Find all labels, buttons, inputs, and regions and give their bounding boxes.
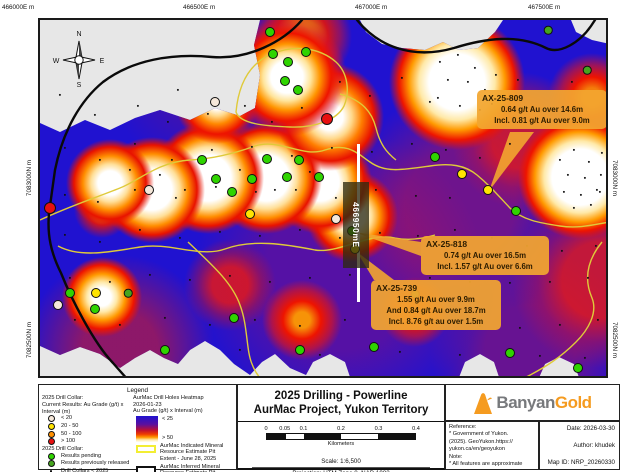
- grade-50-100-symbol: [48, 431, 55, 438]
- pending-drill-collar: [295, 345, 305, 355]
- inferred-pit-label: AurMac Inferred Mineral Resource Estimat…: [160, 464, 232, 472]
- callout-ax-25-809: AX-25-809 0.64 g/t Au over 14.6m Incl. 0…: [477, 90, 607, 129]
- assay-line: 0.64 g/t Au over 14.6m: [482, 104, 602, 115]
- svg-text:S: S: [77, 82, 82, 88]
- indicated-pit-label: AurMac Indicated Mineral Resource Estima…: [160, 443, 232, 463]
- note-line: * All features are approximate: [449, 461, 535, 468]
- released-drill-collar: [583, 66, 592, 75]
- map-title: 2025 Drilling - Powerline AurMac Project…: [238, 389, 444, 417]
- brand-gold: Gold: [555, 393, 592, 412]
- released-drill-collar: [544, 26, 553, 35]
- pending-drill-collar: [65, 288, 75, 298]
- heatmap-legend-date: 2026-01-23: [133, 402, 233, 409]
- assay-line: 0.74 g/t Au over 16.5m: [426, 250, 544, 261]
- svg-text:E: E: [100, 58, 105, 65]
- reference-line: * Government of Yukon.: [449, 431, 535, 438]
- red-drill-collar: [44, 202, 56, 214]
- pending-drill-collar: [294, 155, 304, 165]
- pending-drill-collar: [229, 313, 239, 323]
- note-header: Note:: [449, 454, 535, 461]
- results-pending-symbol: [48, 453, 55, 460]
- scale-tick: 0.05: [279, 426, 290, 432]
- grade-label: 50 - 100: [61, 431, 82, 438]
- yellow-drill-collar: [245, 209, 255, 219]
- heatmap-min-label: < 25: [162, 416, 173, 423]
- scale-tick: 0.3: [375, 426, 383, 432]
- yellow-drill-collar: [457, 169, 467, 179]
- pending-drill-collar: [197, 155, 207, 165]
- northing-label: 7083000N m: [611, 160, 618, 196]
- pending-drill-collar: [369, 342, 379, 352]
- hole-id: AX-25-809: [482, 93, 602, 104]
- callout-ax-25-739: AX-25-739 1.55 g/t Au over 9.9m And 0.84…: [371, 280, 501, 330]
- scale-tick: 0.1: [300, 426, 308, 432]
- grade-label: > 100: [61, 438, 75, 445]
- status-label: Results pending: [61, 453, 101, 460]
- callout-ax-25-818: AX-25-818 0.74 g/t Au over 16.5m Incl. 1…: [421, 236, 549, 275]
- svg-text:N: N: [76, 31, 81, 38]
- project-boundary-line: [49, 20, 596, 378]
- section-line-label: 466950mE: [343, 182, 369, 268]
- map-sheet: 466000E m 466500E m 467000E m 467500E m …: [0, 0, 624, 472]
- grade-gt100-symbol: [48, 438, 55, 445]
- pending-drill-collar: [262, 154, 272, 164]
- inferred-pit-swatch: [136, 466, 156, 472]
- grade-label: < 20: [61, 415, 72, 422]
- pending-drill-collar: [314, 172, 324, 182]
- status-label: Results previously released: [61, 460, 129, 467]
- northing-label: 7082500N m: [26, 322, 33, 358]
- svg-text:W: W: [53, 58, 60, 65]
- heatmap-gradient-swatch: [136, 416, 158, 442]
- hole-id: AX-25-739: [376, 283, 496, 294]
- reference-header: Reference:: [449, 424, 535, 431]
- legend-heatmap-column: AurMac Drill Holes Heatmap 2026-01-23 Au…: [133, 395, 233, 472]
- easting-label: 467500E m: [528, 4, 560, 11]
- pending-drill-collar: [430, 152, 440, 162]
- compass-rose: N S W E: [52, 26, 106, 88]
- heatmap-max-label: > 50: [162, 435, 173, 442]
- pending-drill-collar: [573, 363, 583, 373]
- scale-tick: 0.2: [337, 426, 345, 432]
- grade-lt20-symbol: [48, 415, 55, 422]
- assay-line: Incl. 0.81 g/t Au over 9.0m: [482, 115, 602, 126]
- yellow-drill-collar: [91, 288, 101, 298]
- legend-subheader: Current Results: Au Grade (g/t) x Interv…: [42, 402, 133, 415]
- scale-bar: 0 0.05 0.1 0.2 0.3 0.4 Kilometers: [266, 426, 416, 447]
- assay-line: Incl. 1.57 g/t Au over 6.6m: [426, 261, 544, 272]
- northing-label: 7083000N m: [26, 160, 33, 196]
- low-drill-collar: [144, 185, 154, 195]
- legend-header: 2025 Drill Collar:: [42, 395, 133, 402]
- pending-drill-collar: [301, 47, 311, 57]
- released-drill-collar: [124, 289, 133, 298]
- indicated-pit-swatch: [136, 445, 156, 453]
- red-drill-collar: [321, 113, 333, 125]
- yellow-drill-collar: [483, 185, 493, 195]
- brand-banyan: Banyan: [496, 393, 554, 412]
- pending-drill-collar: [247, 174, 257, 184]
- legend-panel: Legend 2025 Drill Collar: Current Result…: [38, 384, 237, 470]
- assay-line: Incl. 8.76 g/t au over 1.5m: [376, 316, 496, 327]
- heatmap-canvas: 466950mE AX-25-809 0.64 g/t Au over 14.6…: [38, 18, 608, 378]
- map-meta-cell: Date: 2026-03-30 Author: khudek Map ID: …: [539, 421, 620, 470]
- scale-section: 0 0.05 0.1 0.2 0.3 0.4 Kilometers Scale:…: [238, 421, 444, 472]
- banyan-mountain-icon: [473, 391, 493, 415]
- reference-line: yukon.ca/en/geoyukon: [449, 446, 535, 453]
- legend-header: 2025 Drill Collar:: [42, 446, 133, 453]
- northing-label: 7082500N m: [611, 322, 618, 358]
- easting-label: 466500E m: [183, 4, 215, 11]
- pending-drill-collar: [293, 85, 303, 95]
- map-date: Date: 2026-03-30: [567, 425, 615, 432]
- pending-drill-collar: [211, 174, 221, 184]
- reference-line: (2025). GeoYukon.https://: [449, 439, 535, 446]
- easting-label: 467000E m: [355, 4, 387, 11]
- pending-drill-collar: [265, 27, 275, 37]
- map-id: Map ID: NRP_20260330: [548, 459, 615, 466]
- heatmap-legend-title: AurMac Drill Holes Heatmap: [133, 395, 233, 402]
- pending-drill-collar: [160, 345, 170, 355]
- grade-20-50-symbol: [48, 423, 55, 430]
- scale-bar-segments: [266, 433, 416, 440]
- legend-title: Legend: [42, 387, 233, 394]
- pending-drill-collar: [505, 348, 515, 358]
- pending-drill-collar: [227, 187, 237, 197]
- reference-cell: Reference: * Government of Yukon. (2025)…: [445, 421, 539, 470]
- heatmap-legend-subtitle: Au Grade (g/t) x Interval (m): [133, 408, 233, 415]
- map-linework: [40, 20, 608, 378]
- assay-line: 1.55 g/t Au over 9.9m: [376, 294, 496, 305]
- scale-tick: 0: [264, 426, 267, 432]
- pending-drill-collar: [268, 49, 278, 59]
- pending-drill-collar: [511, 206, 521, 216]
- results-released-symbol: [48, 460, 55, 467]
- brand-wordmark: BanyanGold: [496, 393, 591, 413]
- title-block: 2025 Drilling - Powerline AurMac Project…: [237, 384, 445, 470]
- low-drill-collar: [53, 300, 63, 310]
- grade-label: 20 - 50: [61, 423, 78, 430]
- legend-collars-column: 2025 Drill Collar: Current Results: Au G…: [42, 395, 133, 472]
- assay-line: And 0.84 g/t Au over 18.7m: [376, 305, 496, 316]
- scale-text: Scale: 1:6,500: [238, 458, 444, 465]
- scale-units: Kilometers: [266, 441, 416, 447]
- easting-label: 466000E m: [2, 4, 34, 11]
- pending-drill-collar: [280, 76, 290, 86]
- pending-drill-collar: [283, 57, 293, 67]
- hole-id: AX-25-818: [426, 239, 544, 250]
- pending-drill-collar: [90, 304, 100, 314]
- scale-tick: 0.4: [412, 426, 420, 432]
- projection-text: Projection: UTM Zone 8, NAD 1983: [252, 467, 430, 472]
- map-author: Author: khudek: [573, 442, 615, 449]
- status-label: Drill Collars < 2025: [61, 468, 108, 472]
- pending-drill-collar: [282, 172, 292, 182]
- low-drill-collar: [210, 97, 220, 107]
- low-drill-collar: [331, 214, 341, 224]
- company-logo: BanyanGold: [445, 384, 620, 421]
